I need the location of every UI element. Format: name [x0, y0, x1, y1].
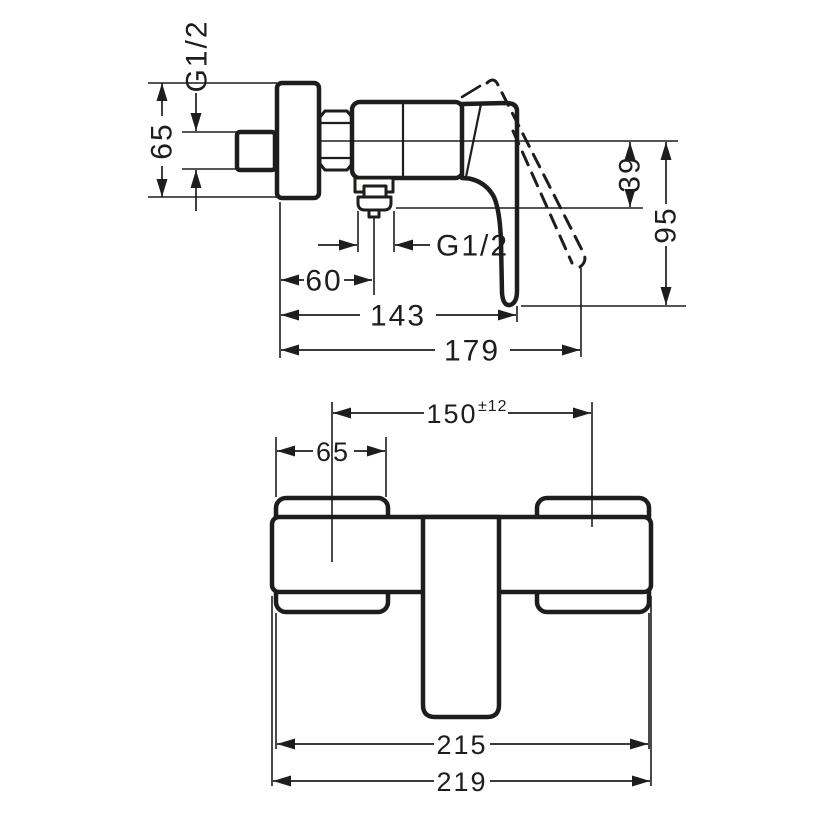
lever-handle-open-dashed — [462, 86, 480, 97]
dim-label-depth-closed: 143 — [370, 300, 426, 333]
dim-label-overall-width: 219 — [436, 767, 487, 797]
lever-handle-front — [423, 517, 499, 717]
lever-handle-side — [462, 103, 517, 305]
outlet-nipple — [369, 210, 379, 217]
dim-label-wall-to-outlet: 60 — [305, 265, 342, 298]
dim-label-escutcheon-height: 65 — [146, 122, 179, 159]
dim-label-depth-open: 179 — [444, 335, 500, 368]
dim-label-center-to-outlet: 39 — [614, 155, 647, 192]
dim-label-body-width: 215 — [436, 730, 487, 760]
wall-pipe-stub — [237, 132, 275, 170]
side-view: 65 G1/2 39 95 G1/2 60 143 179 — [146, 19, 687, 367]
lever-handle-open-dashed — [513, 131, 572, 263]
outlet-hose-nut — [358, 197, 391, 210]
dim-label-center-to-handle-end: 95 — [650, 206, 683, 243]
dim-label-connection-distance: 150 — [426, 399, 477, 429]
dim-label-outlet-thread: G1/2 — [436, 230, 509, 263]
outlet-neck — [364, 186, 386, 197]
technical-drawing-page: 65 G1/2 39 95 G1/2 60 143 179 — [0, 0, 828, 828]
shower-mixer-dimension-drawing: 65 G1/2 39 95 G1/2 60 143 179 — [0, 0, 828, 828]
dim-label-escutcheon-width: 65 — [316, 437, 350, 467]
dim-label-connection-tolerance: ±12 — [478, 398, 508, 415]
front-view: 150 ±12 65 215 219 — [272, 398, 651, 797]
wall-escutcheon-side — [277, 83, 319, 198]
dim-label-wall-thread: G1/2 — [181, 19, 214, 92]
valve-body — [352, 102, 463, 178]
